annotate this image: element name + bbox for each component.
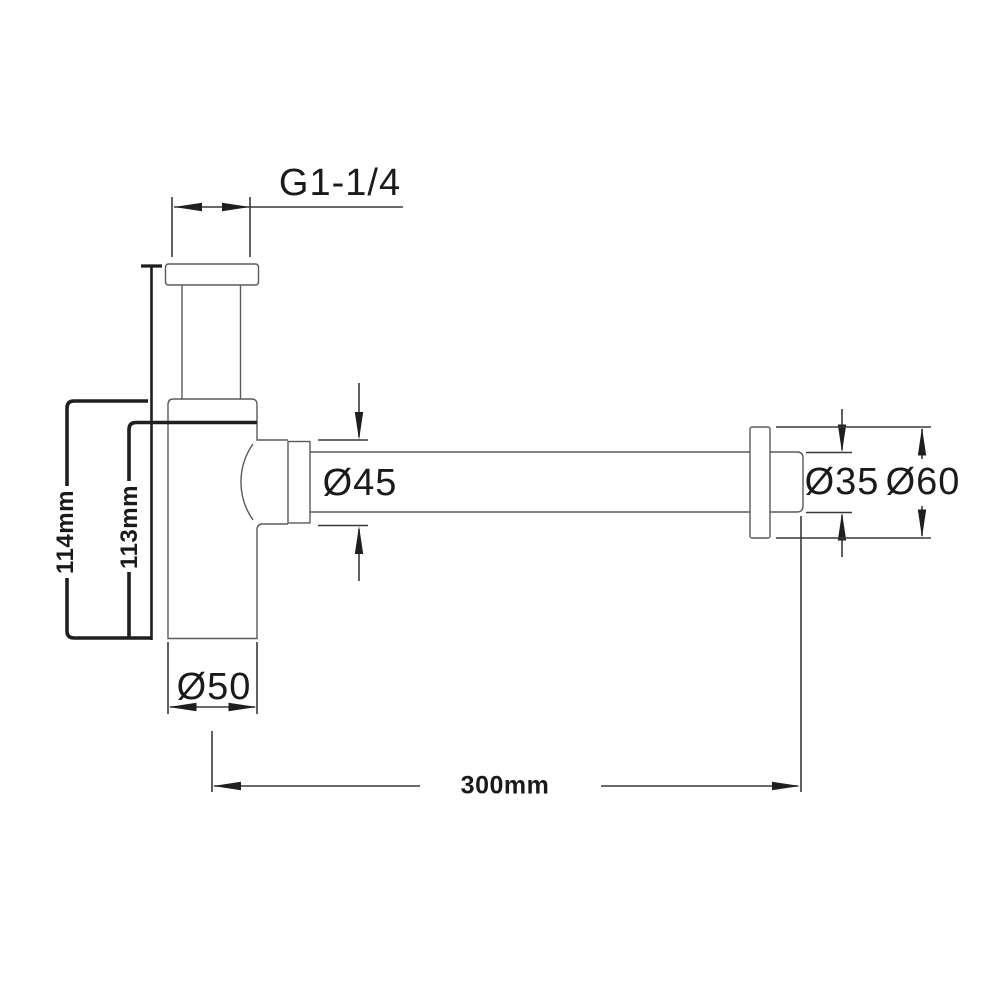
overall-height-label: 114mm: [54, 490, 78, 574]
thread-size-label: G1-1/4: [279, 164, 401, 202]
flange-diameter-label: Ø60: [886, 463, 961, 501]
wall-flange-outline: [750, 427, 770, 538]
outlet-nut-diameter-label: Ø45: [323, 464, 398, 502]
body-height-label: 113mm: [118, 485, 142, 569]
pipe-diameter-label: Ø35: [805, 463, 880, 501]
pipe-length-label: 300mm: [461, 774, 550, 799]
body-diameter-label: Ø50: [177, 668, 252, 706]
technical-drawing-canvas: G1-1/4 Ø45 Ø35 Ø60 Ø50 300mm 114mm 113mm: [0, 0, 1000, 1000]
